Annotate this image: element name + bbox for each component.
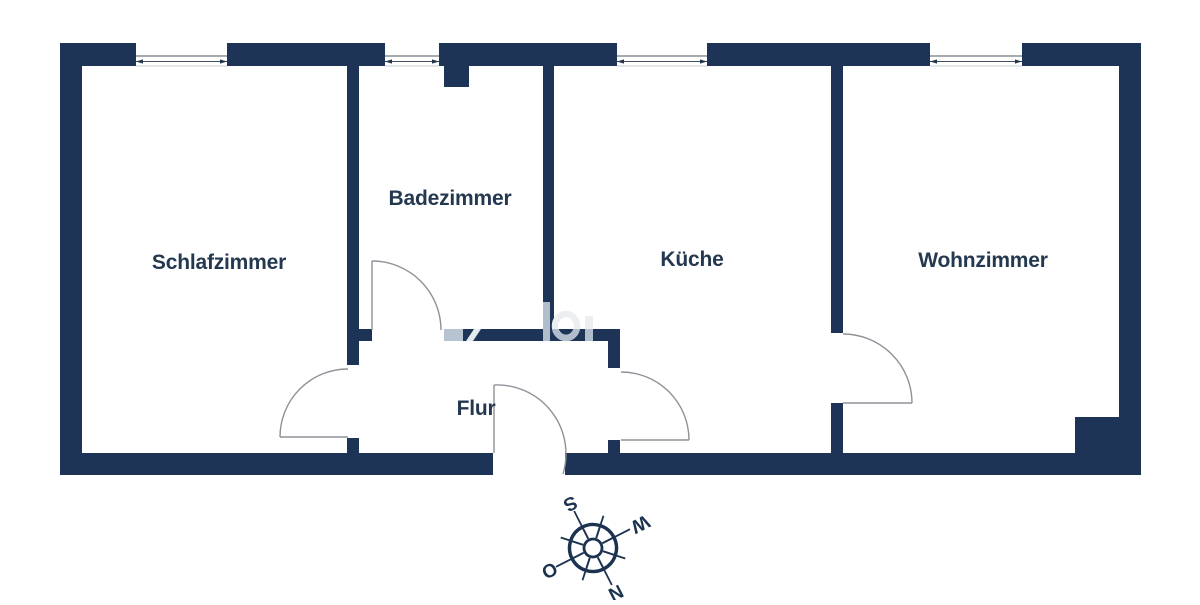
svg-text:Küche: Küche — [660, 248, 723, 271]
svg-text:Wohnzimmer: Wohnzimmer — [918, 249, 1047, 272]
svg-text:Badezimmer: Badezimmer — [389, 187, 512, 210]
svg-text:Flur: Flur — [457, 397, 496, 420]
svg-text:Schlafzimmer: Schlafzimmer — [152, 251, 286, 274]
